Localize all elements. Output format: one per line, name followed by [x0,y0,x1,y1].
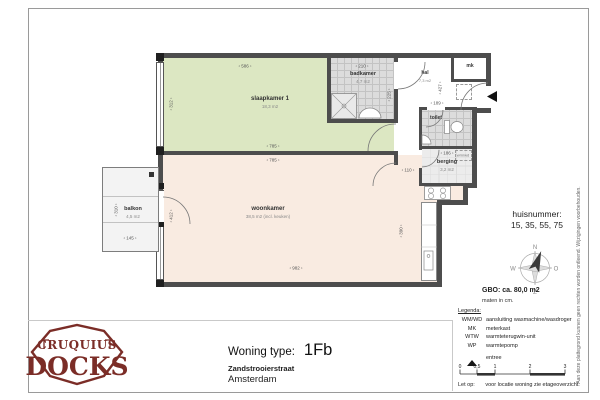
legend-row-entree: entree [458,354,580,361]
note-line: Let op: voor locatie woning zie etageove… [458,382,580,388]
titleblock-divider [28,320,452,321]
badkamer-name: badkamer [350,71,376,77]
legend-row: WM/WD aansluiting wasmachine/wasdroger [458,317,580,323]
wall [437,200,442,287]
legend: Legenda: WM/WD aansluiting wasmachine/wa… [458,308,580,363]
wtw-unit [456,84,472,100]
huisnummer-label: huisnummer: [492,209,582,220]
woning-type-value: 1Fb [304,341,332,360]
dim-slaapkamer-breedte: 586 [238,64,251,69]
balkon-name: balkon [124,206,142,212]
room-woonkamer [163,155,437,282]
woonkamer-name: woonkamer [251,206,284,212]
wall [445,107,477,110]
legend-row: MK meterkast [458,326,580,332]
dim-slaapkamer-breedte-onder: 785 [266,144,279,149]
label-toilet: toilet [430,115,442,121]
woning-type-label: Woning type: [228,346,295,358]
legend-value-wtw: warmteterugwin-unit [486,334,580,340]
label-mk: mk [466,63,473,69]
wall [327,53,331,123]
legend-value-entree: entree [486,354,580,361]
wall [419,146,477,149]
balkon-deck-line [103,222,158,223]
label-woonkamer: woonkamer 38,5 m2 (incl. keuken) [246,206,290,220]
note-label: Let op: [458,382,475,388]
hal-name: hal [421,70,428,76]
dim-woonkamer-diepte: 412 [169,209,174,222]
wall [394,155,398,165]
slaapkamer-name: slaapkamer 1 [251,96,289,102]
title-block: Woning type: 1Fb [228,341,332,360]
disclaimer-text: Aan deze plattegrond kunnen geen rechten… [576,182,582,388]
label-hal: hal 7,3 m2 [419,70,431,84]
wall [394,89,398,123]
note-text: voor locatie woning zie etageoverzicht. [485,382,579,388]
wall [419,107,422,150]
hal-area: 7,3 m2 [419,77,431,84]
berging-area: 3,2 m2 [437,166,457,173]
dim-hal-breedte: 189 [430,101,443,106]
street-name: Zandstrooierstraat [228,364,294,373]
wall [158,151,398,155]
window-slaapkamer [156,62,164,147]
legend-value-mk: meterkast [486,326,580,332]
huisnummer-values: 15, 35, 55, 75 [492,220,582,231]
dim-gang-breedte: 110 [402,168,415,173]
wall-stub [156,53,164,61]
wall [451,79,491,82]
balkon-deck-line [103,196,158,197]
balkon-area: 4,5 m2 [124,213,142,220]
wall [419,183,477,186]
dim-berging-breedte: 186 [440,151,453,156]
label-berging: berging 3,2 m2 [437,159,457,173]
label-balkon: balkon 4,5 m2 [124,206,142,220]
berging-name: berging [437,159,457,165]
city-name: Amsterdam [228,374,277,385]
kitchen-counter [421,202,437,281]
dim-badkamer-diepte: 225 [387,88,392,101]
maten-text: maten in cm. [482,298,513,304]
dim-balkon-breedte: 145 [123,236,136,241]
dim-woonkamer-breedte-boven: 785 [266,158,279,163]
wall-stub [156,280,164,287]
wall [158,53,491,58]
woonkamer-area: 38,5 m2 (incl. keuken) [246,213,290,220]
label-badkamer: badkamer 4,7 m2 [350,71,376,85]
wall [327,119,398,123]
wall [451,53,454,82]
entree-icon [458,354,486,361]
slaapkamer-area: 18,3 m2 [251,103,289,110]
dim-keuken-diepte: 390 [399,224,404,237]
dim-hal-diepte: 427 [438,81,443,94]
wasmachine-label: wm/wd [457,153,469,158]
badkamer-area: 4,7 m2 [350,78,376,85]
dim-woonkamer-breedte-onder: 982 [289,266,302,271]
legend-key-wtw: WTW [458,334,486,340]
dim-balkon-diepte: 310 [114,203,119,216]
gbo-text: GBO: ca. 80,0 m2 [482,287,540,294]
wall [394,53,398,62]
dim-badkamer-breedte: 210 [355,64,368,69]
legend-heading: Legenda: [458,308,481,314]
wall-stub [156,147,164,155]
legend-row: WP warmtepomp [458,343,580,349]
balkon-drain [149,172,154,177]
legend-row: WTW warmteterugwin-unit [458,334,580,340]
wall [158,282,442,287]
legend-key-mk: MK [458,326,486,332]
floorplan-sheet: { "sheet": { "title_block": {"label": "W… [0,0,600,400]
legend-value-wmwd: aansluiting wasmachine/wasdroger [486,317,580,323]
legend-value-wp: warmtepomp [486,343,580,349]
legend-key-wmwd: WM/WD [458,317,486,323]
huisnummer-block: huisnummer: 15, 35, 55, 75 [492,209,582,231]
dim-slaapkamer-diepte: 312 [169,97,174,110]
label-slaapkamer: slaapkamer 1 18,3 m2 [251,96,289,110]
room-keuken-zone [398,186,468,200]
titleblock-divider-vertical [452,320,453,391]
legend-key-wp: WP [458,343,486,349]
